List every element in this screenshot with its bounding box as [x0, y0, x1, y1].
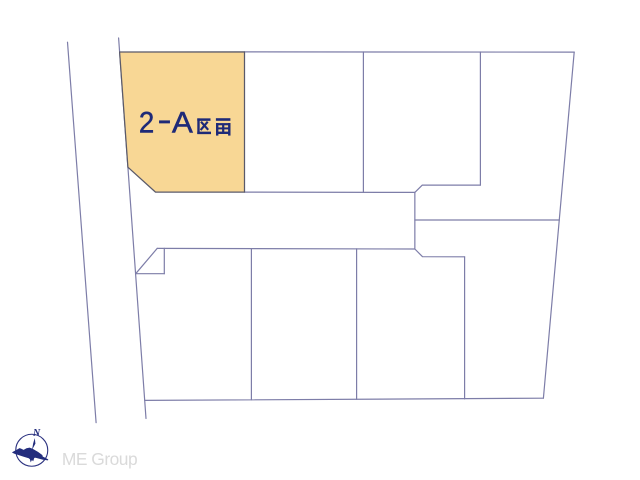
svg-text:2: 2	[139, 107, 154, 140]
svg-text:A: A	[172, 107, 193, 140]
svg-text:ME Group: ME Group	[62, 449, 137, 469]
svg-text:N: N	[32, 428, 41, 439]
